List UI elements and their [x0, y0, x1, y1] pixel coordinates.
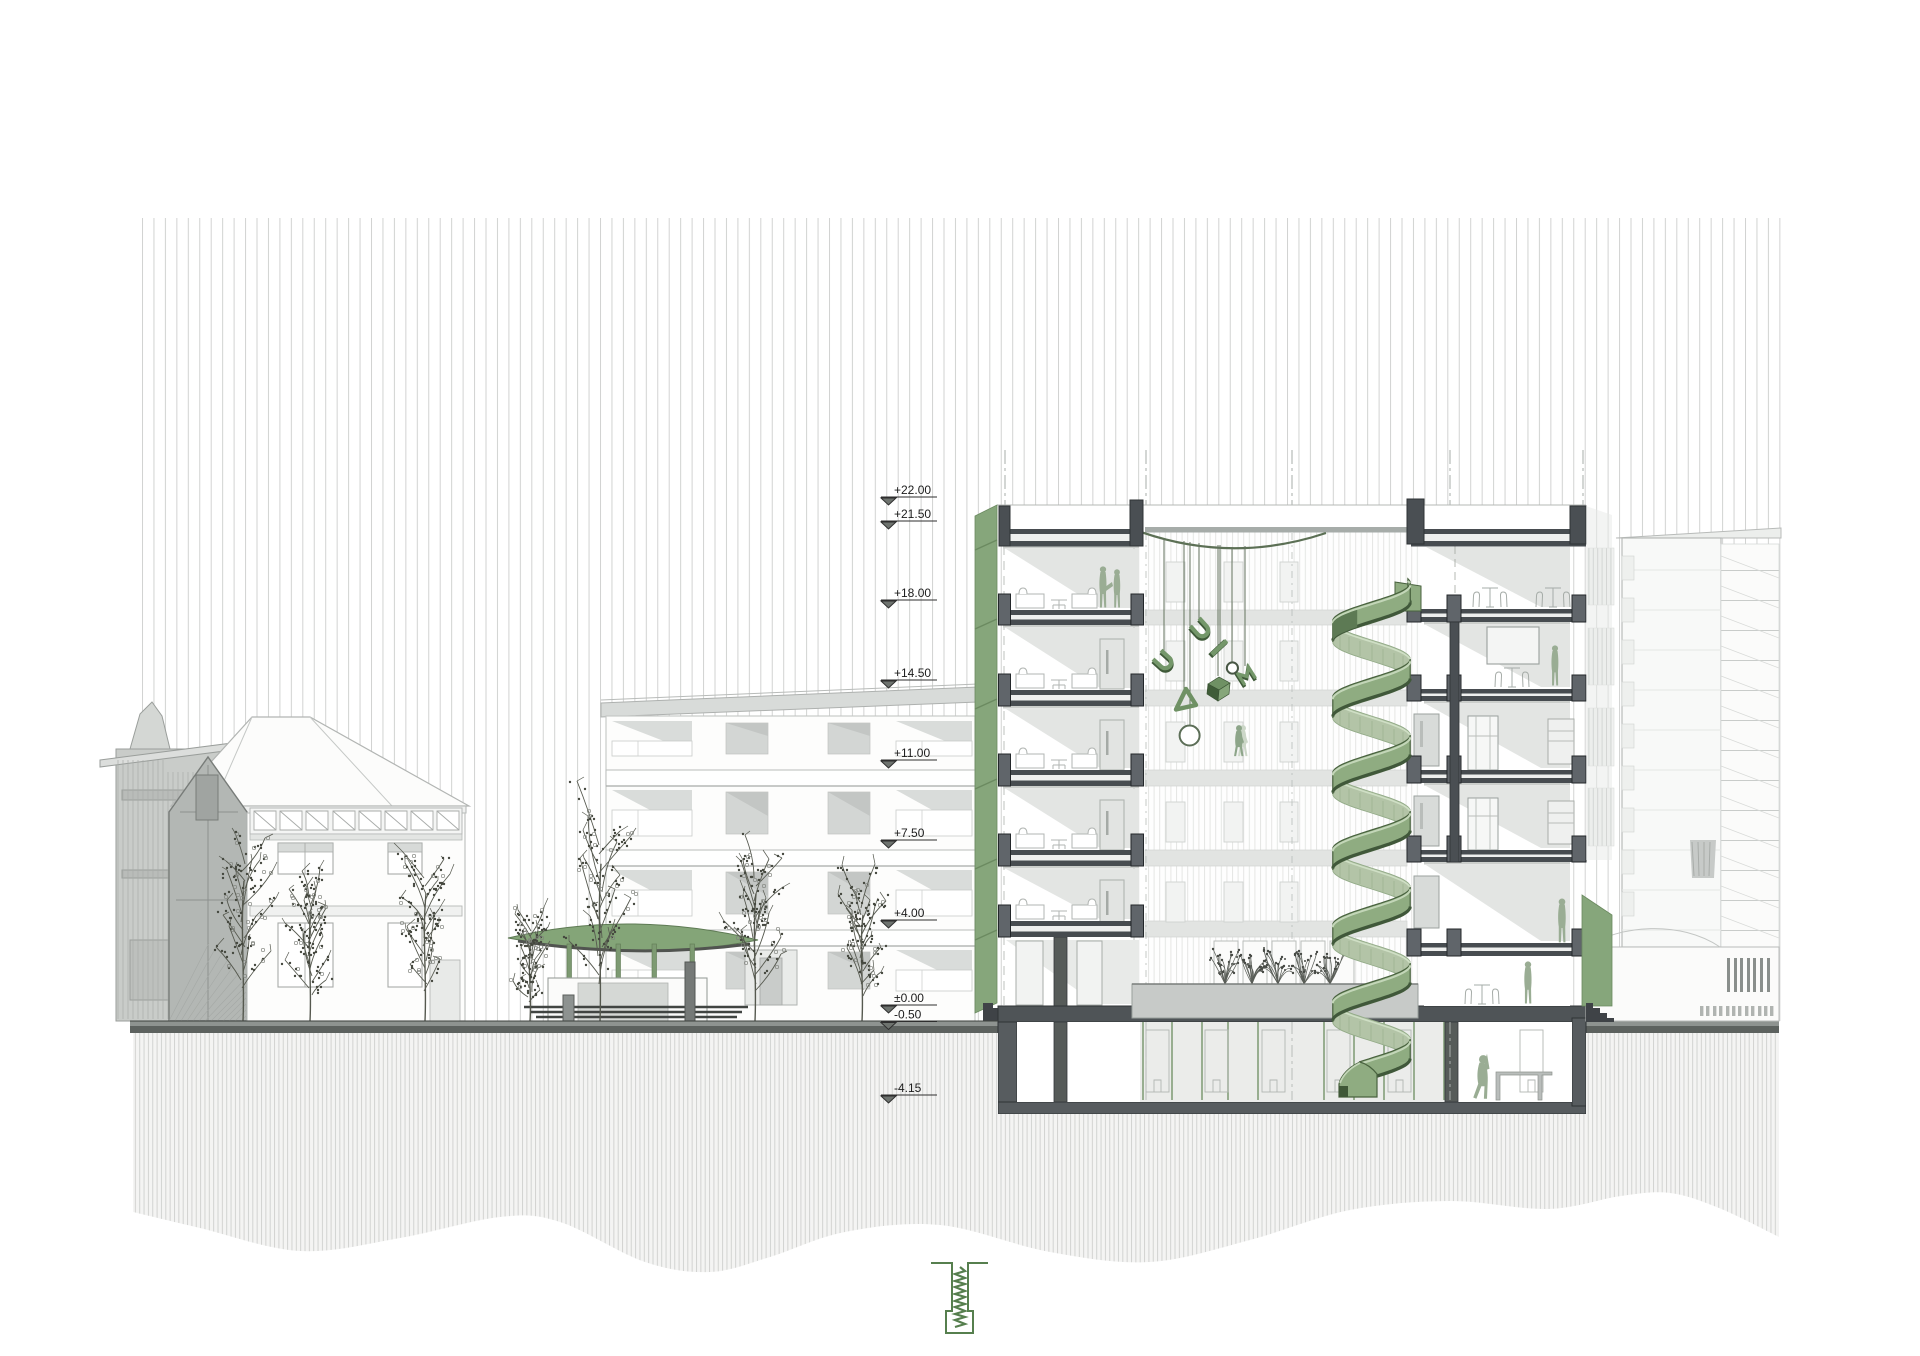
svg-text:-0.50: -0.50 [894, 1008, 922, 1022]
svg-text:+11.00: +11.00 [894, 746, 930, 760]
svg-text:±0.00: ±0.00 [894, 991, 924, 1005]
svg-text:+7.50: +7.50 [894, 826, 925, 840]
svg-text:+22.00: +22.00 [894, 483, 931, 497]
svg-text:+4.00: +4.00 [894, 906, 925, 920]
svg-text:+14.50: +14.50 [894, 666, 931, 680]
svg-text:+18.00: +18.00 [894, 586, 931, 600]
svg-text:+21.50: +21.50 [894, 507, 931, 521]
svg-text:-4.15: -4.15 [894, 1081, 922, 1095]
